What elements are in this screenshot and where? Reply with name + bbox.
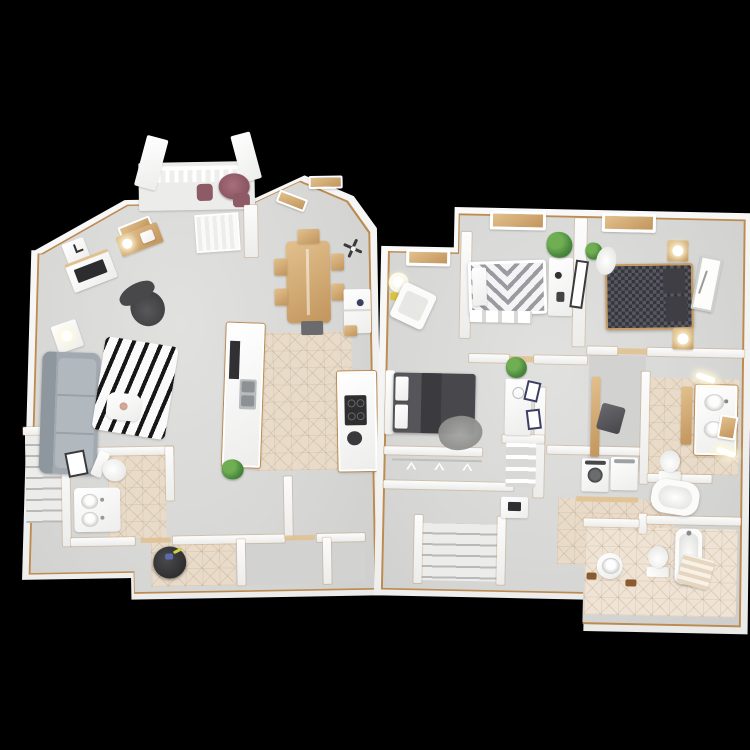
- toilet-bowl: [660, 450, 680, 472]
- bed-pillow: [395, 404, 408, 428]
- bathroom-vanity: [74, 487, 121, 532]
- balcony: [134, 121, 260, 213]
- nightstand: [672, 328, 693, 349]
- framed-art: [717, 414, 739, 441]
- second-floor-plan: [379, 192, 750, 630]
- toilet-bowl: [648, 546, 668, 568]
- bistro-chair: [197, 184, 213, 201]
- zebra-rug: [91, 336, 179, 440]
- navy-frame: [526, 409, 542, 431]
- bed-pillow: [472, 267, 487, 305]
- bed-throw: [421, 373, 442, 433]
- wall: [323, 538, 332, 584]
- staircase: [421, 523, 497, 582]
- bed-pillow: [395, 376, 408, 400]
- floor-plan-render: [0, 0, 750, 750]
- stair-desk: [501, 497, 528, 519]
- desk-lamp: [121, 237, 134, 250]
- first-floor-plan: [15, 113, 382, 641]
- ceiling-fan: [343, 238, 363, 258]
- dining-chair: [274, 288, 287, 305]
- wall: [534, 355, 587, 364]
- hanger-closet: [392, 456, 482, 482]
- wall: [237, 539, 246, 585]
- wall: [165, 446, 174, 500]
- wall: [284, 476, 293, 538]
- door-threshold: [285, 535, 315, 541]
- toilet: [645, 543, 674, 578]
- wall: [71, 537, 135, 546]
- wall: [469, 354, 509, 363]
- closet-rod: [392, 458, 482, 462]
- bedside-lamp: [677, 333, 688, 344]
- window-sill: [309, 175, 343, 189]
- counter-shelf: [344, 325, 357, 336]
- washer: [581, 458, 609, 492]
- kitchen-island: [222, 323, 265, 468]
- toilet-tank: [647, 567, 669, 577]
- wall: [244, 205, 258, 257]
- bath-accessory: [586, 572, 596, 579]
- double-sink: [239, 379, 257, 410]
- dining-table: [286, 241, 331, 324]
- window-sill: [406, 249, 450, 267]
- door-threshold: [141, 538, 171, 544]
- houndstooth-bed: [605, 263, 694, 330]
- coffee-table: [105, 391, 142, 422]
- dryer: [610, 457, 638, 491]
- dining-chair: [297, 229, 319, 243]
- door-threshold: [617, 348, 647, 355]
- window-sill: [602, 213, 656, 233]
- counter-vase: [357, 299, 364, 306]
- footboard-bench: [470, 310, 532, 323]
- nightstand: [667, 240, 688, 261]
- dining-chair: [274, 258, 287, 275]
- bath-accessory: [625, 579, 636, 586]
- closet-floor: [245, 540, 322, 585]
- pouf-decor: [165, 553, 173, 559]
- tub-faucet: [686, 531, 691, 536]
- bed-pillow: [665, 296, 687, 321]
- prep-sink: [347, 431, 362, 445]
- wall: [496, 517, 505, 585]
- desk-papers: [139, 229, 155, 244]
- bedside-lamp: [672, 245, 683, 256]
- wall: [413, 515, 422, 583]
- shelf-closet: [505, 443, 536, 488]
- wall: [638, 514, 646, 534]
- linen-cabinet: [680, 386, 692, 444]
- sliding-door-blinds: [194, 212, 241, 253]
- dresser: [548, 258, 573, 316]
- window-sill: [490, 210, 546, 230]
- bed-pillow: [663, 268, 685, 293]
- kitchen-counter: [337, 371, 378, 472]
- dining-chair: [301, 321, 323, 335]
- table-decor: [119, 402, 128, 411]
- wall: [587, 346, 617, 355]
- television: [74, 259, 108, 283]
- closet-floor: [329, 539, 366, 582]
- wall: [584, 518, 639, 527]
- dishwasher: [229, 341, 240, 379]
- cooktop: [344, 395, 367, 425]
- potted-plant: [506, 357, 527, 378]
- table-lamp: [60, 329, 74, 343]
- toilet: [657, 447, 686, 482]
- potted-plant: [221, 459, 243, 479]
- potted-plant: [546, 232, 573, 259]
- chevron-bed: [468, 260, 548, 316]
- laptop: [508, 502, 521, 511]
